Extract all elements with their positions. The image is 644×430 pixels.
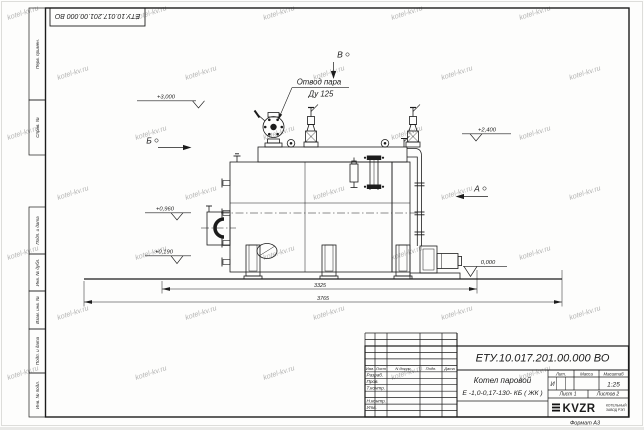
drawing-sheet: Перв. примен. Справ. № Подп. и дата Инв.… xyxy=(0,0,644,430)
mass-label: Масса xyxy=(580,371,593,376)
header-col-docum: N докум. xyxy=(395,366,411,371)
logo-sub2: ЗАВОД РЭП xyxy=(606,408,625,412)
header-col-izm: Изм. xyxy=(366,366,375,371)
scale-value: 1:25 xyxy=(607,382,620,389)
svg-text:Ду 125: Ду 125 xyxy=(308,90,334,99)
margin-cell-label: Подп. и дата xyxy=(35,216,40,245)
doc-title-line2: Е -1,0-0,17-130- КБ ( ЖК ) xyxy=(462,390,542,397)
svg-text:Отвод пара: Отвод пара xyxy=(297,78,342,87)
title-designation: ЕТУ.10.017.201.00.000 ВО xyxy=(476,353,610,365)
svg-text:+3,000: +3,000 xyxy=(157,95,176,101)
margin-cell-label: Инв. № подл. xyxy=(35,381,40,409)
format-label: Формат А3 xyxy=(570,421,601,427)
header-col-podp: Подп. xyxy=(426,366,437,371)
svg-text:Б: Б xyxy=(146,136,152,146)
sign-row-utv: Утв. xyxy=(367,405,377,410)
dim-outer-value: 3765 xyxy=(317,296,330,302)
sign-row-tkontr: Т.контр. xyxy=(367,386,386,391)
scale-label: Масштаб xyxy=(603,371,624,376)
svg-text:+0,190: +0,190 xyxy=(155,250,174,256)
margin-cell-label: Взам. инв. № xyxy=(35,296,40,324)
header-col-list: Лист xyxy=(375,366,387,371)
sheet-info: Лист 1 xyxy=(558,392,576,398)
margin-cell-label: Инв. № дубл. xyxy=(35,259,40,287)
sign-row-razrab: Разраб. xyxy=(367,373,384,378)
svg-text:В: В xyxy=(337,50,343,60)
logo-text: KVZR xyxy=(563,403,596,415)
sheets-info: Листов 2 xyxy=(596,392,620,398)
header-col-data: Дата xyxy=(443,366,455,371)
sign-row-prov: Пров. xyxy=(367,379,379,384)
svg-text:+2,400: +2,400 xyxy=(478,128,497,134)
margin-cell-label: Перв. примен. xyxy=(35,39,40,69)
margin-cell-label: Подп. и дата xyxy=(35,336,40,365)
svg-text:0,000: 0,000 xyxy=(481,260,496,266)
lit-label: Лит. xyxy=(555,371,566,376)
lit-value: И xyxy=(550,382,555,388)
dim-inner-value: 3325 xyxy=(314,283,327,289)
margin-cell-label: Справ. № xyxy=(35,117,40,138)
svg-text:А: А xyxy=(473,184,480,194)
svg-text:+0,960: +0,960 xyxy=(156,207,175,213)
doc-title-line1: Котел паровой xyxy=(474,376,532,385)
logo-sub1: КОТЕЛЬНЫЙ xyxy=(606,404,627,408)
sign-row-nkontr: Н.контр. xyxy=(367,399,386,404)
designation-rotated: ЕТУ.10.017.201.00.000 ВО xyxy=(54,12,140,19)
